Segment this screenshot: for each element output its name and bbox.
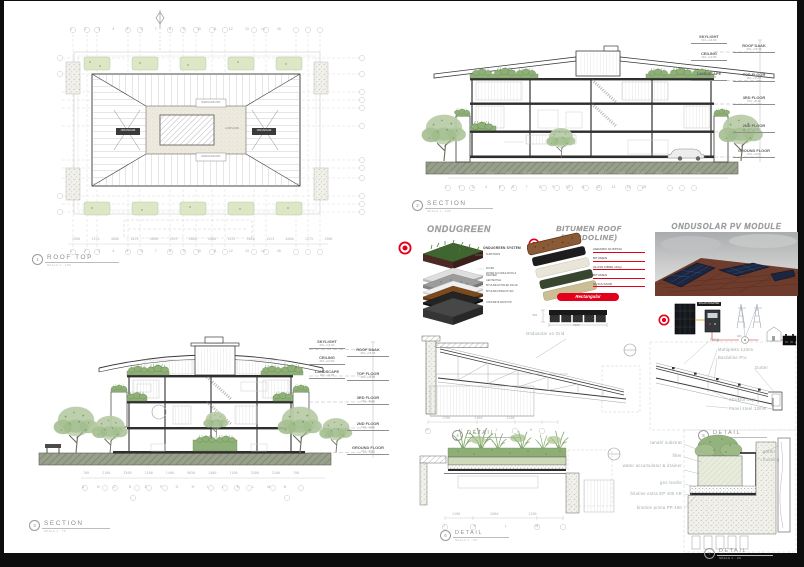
ondusolar-note: Ondusolar on Grid	[526, 331, 565, 336]
roof-chip-left: ONDUSOLAR	[116, 130, 140, 132]
callout-multipleks: Multipleks 12mm	[718, 347, 753, 352]
ondusolar-title: ONDUSOLAR PV MODULE	[653, 222, 800, 231]
profile-height-dim: 340	[532, 313, 537, 317]
drawing-title: DETAIL	[453, 530, 509, 538]
layer-label: BITULINE EXTRA EP 400 AR	[486, 285, 524, 288]
profile-width-dim: 1000	[573, 323, 580, 327]
grid-numbers-bottom: 1 2 3 4 5 6 7 8 9 10 11 12 13 14 15	[70, 249, 281, 253]
level-skylight: SKYLIGHTFFL +14.90	[309, 340, 345, 349]
skylight-hatch	[160, 115, 214, 145]
detail-corner-title-block: 7 DETAIL SKALA 1 : 20	[704, 548, 773, 560]
level-top-floor: TOP FLOORFFL +11.95	[347, 372, 389, 381]
pv-roof-photo	[655, 232, 798, 296]
bardoline-layer-label: BITUMEN	[593, 256, 645, 262]
drainage	[448, 465, 566, 469]
level-top-floor: TOP FLOORFFL +11.95	[733, 73, 775, 82]
gutter-channel	[778, 438, 790, 532]
roof-label-bottom: BARDOLINE PRO	[196, 156, 226, 158]
layer-label: GEOTEXTILE	[486, 280, 524, 283]
bench	[45, 444, 61, 453]
level-3rd-floor: 3RD FLOORFFL +8.40	[347, 396, 389, 405]
callout-filter: filter	[600, 453, 682, 458]
louver-band	[430, 386, 534, 416]
drawing-title: SECTION	[425, 200, 493, 209]
drawing-number: 7	[704, 548, 715, 559]
drawing-scale: SKALA 1 : 100	[425, 209, 493, 213]
bardoline-layer-label: SILICA SAND	[593, 282, 645, 288]
drawing-number: 1	[32, 254, 43, 265]
level-ground-floor: GROUND FLOORFFL +0.00	[347, 446, 389, 455]
grid-numbers: 1 2 3 4 5 6 7 8 9 10 11 12 13 14 15	[445, 185, 646, 189]
level-2nd-floor: 2ND FLOORFFL +4.90	[347, 422, 389, 431]
car	[668, 149, 704, 161]
rectangular-badge: Rectangular	[557, 293, 619, 301]
dimension-row: 1900 1375 4000 1525 4000 1525 2800 2800 …	[448, 171, 701, 175]
ondugreen-panel: ONDUGREEN ONDUGREEN SYSTEM	[393, 224, 525, 328]
level-landscape: LANDSCAPEFFL +11.95	[691, 72, 727, 81]
callout-struktur-baja: Struktur baja	[729, 397, 756, 402]
layer-label: SUBSTRATE	[486, 254, 524, 257]
section-bottom-panel: 700 2100 3300 1100 1400 9850 1400 1100 3…	[25, 332, 397, 546]
level-3rd-floor: 3RD FLOORFFL +8.40	[733, 96, 775, 105]
level-ground-floor: GROUND FLOORFFL +0.00	[733, 149, 775, 158]
drawing-scale: SKALA 1 : 50	[453, 538, 509, 542]
battens	[672, 367, 761, 391]
level-skylight: SKYLIGHTFFL +14.90	[691, 35, 727, 44]
power-towers	[737, 304, 762, 338]
drawing-title: ROOF TOP	[45, 254, 119, 263]
roof-chip-right: ONDUSOLAR	[252, 130, 276, 132]
drawing-number: 3	[29, 520, 40, 531]
liner	[740, 453, 756, 487]
hedge	[448, 448, 566, 457]
dimension-row: 700 2100 3300 1100 1400 9850 1400 1100 3…	[83, 471, 299, 475]
drawing-number: 6	[440, 530, 451, 541]
drawing-number: 2	[412, 200, 423, 211]
grid-numbers-top: 1 2 3 4 5 6 7 8 9 10 11 12 13 14 15	[70, 27, 281, 31]
level-roof-daak: ROOF DAAKFFL +15.35	[733, 44, 775, 53]
bardoline-layer-label: BITUMEN	[593, 273, 645, 279]
drawing-sheet-viewport: 1 2 3 4 5 6 7 8 9 10 11 12 13 14 15 1 2 …	[0, 0, 804, 567]
shingle-stack	[527, 231, 597, 302]
callout-tanah: tanah/ substrat	[600, 440, 682, 445]
callout-gutter: Gutter	[755, 365, 768, 370]
level-ceiling: CEILINGFFL +13.80	[309, 356, 345, 365]
bardoline-layer-label: CERAMIC DUSTING	[593, 247, 645, 253]
dimension-row: 1700 1400 1100	[442, 416, 515, 420]
ground	[39, 453, 331, 465]
detail-corner-panel: tanah/ substrat filter water accumulator…	[600, 424, 800, 559]
membrane	[690, 493, 756, 495]
courtyard-tree	[546, 128, 575, 158]
drainage-band	[690, 486, 756, 493]
callout-bituline-extra: bituline extra EP 400 AR	[600, 491, 682, 496]
courtyard-label: LANDSCAPE	[220, 128, 244, 130]
level-landscape: LANDSCAPEFFL +11.95	[309, 370, 345, 379]
level-2nd-floor: 2ND FLOORFFL +4.90	[733, 124, 775, 133]
level-ceiling: CEILINGFFL +13.80	[691, 52, 727, 61]
section-top-title-block: 2 SECTION SKALA 1 : 100	[412, 200, 493, 213]
tree-left-2	[92, 416, 128, 453]
layer-stack	[423, 240, 483, 325]
callout-circle	[624, 344, 636, 356]
dimension-row: 1900 1375 4000 1525 4000 1525 2800 2800 …	[72, 237, 332, 241]
roof-plan-panel: 1 2 3 4 5 6 7 8 9 10 11 12 13 14 15 1 2 …	[28, 8, 396, 272]
roof-label-top: BARDOLINE PRO	[196, 102, 226, 104]
planter-tree	[203, 412, 228, 438]
callout-geo-textile: geo textile	[600, 480, 682, 485]
shrub	[695, 435, 742, 458]
substrate	[448, 457, 566, 465]
callout-gutter: gutter	[763, 449, 775, 454]
north-arrow-icon	[156, 10, 164, 52]
membrane	[448, 469, 566, 471]
gutter-profile	[768, 392, 782, 410]
roof-plan-title-block: 1 ROOF TOP SKALA 1 : 100	[32, 254, 119, 267]
inverter-label: SOLAR INVERTER	[697, 302, 721, 306]
building	[99, 337, 323, 454]
callout-water-accumulator: water accumulator & drainer	[620, 464, 682, 469]
layer-label: WATER ACCUMULATION & DRAINER	[486, 273, 524, 278]
callout-flushing: flushing	[763, 457, 780, 462]
detail-planter-title-block: 6 DETAIL SKALA 1 : 50	[440, 530, 509, 542]
roof-plan-drawing	[28, 8, 396, 272]
tree-right-1	[278, 407, 322, 453]
drawing-title: DETAIL	[717, 548, 773, 556]
drawing-scale: SKALA 1 : 75	[42, 529, 110, 533]
dimension-row: 1100 2000 1200	[452, 512, 537, 516]
drawing-scale: SKALA 1 : 100	[45, 263, 119, 267]
bardoline-panel: BITUMEN ROOF (BARDOLINE) CERAMIC DUSTING…	[527, 224, 651, 328]
drawing-scale: SKALA 1 : 20	[717, 556, 773, 560]
layer-label: FILTER	[486, 268, 524, 271]
drawing-title: SECTION	[42, 520, 110, 529]
layer-label: BITULINE PRIMA PP 400	[486, 291, 524, 294]
section-bottom-title-block: 3 SECTION SKALA 1 : 75	[29, 520, 110, 533]
onduline-logo-icon	[399, 242, 412, 255]
ondusolar-panel: ONDUSOLAR PV MODULE	[653, 222, 800, 352]
bardoline-layer-label: GLASS FIBRE 110gr	[593, 265, 645, 271]
grid-letters: J K L M	[443, 524, 538, 528]
callout-reng: reng	[710, 337, 719, 342]
layer-label: CONCRETE ROOFTOP	[486, 302, 524, 305]
callout-bardoline-pro: Bardoline Pro	[718, 355, 747, 360]
grid-letters: A B C D E F G H I J K L M N	[82, 485, 286, 489]
canopy-below	[124, 220, 252, 238]
section-top-panel: 1900 1375 4000 1525 4000 1525 2800 2800 …	[408, 22, 800, 222]
ondugreen-system-title: ONDUGREEN SYSTEM	[483, 246, 521, 250]
callout-bituline-prima: bituline prima PP 400	[600, 505, 682, 510]
level-roof-daak: ROOF DAAKFFL +15.35	[347, 348, 389, 357]
callout-panel-steel: Panel steel 12mm	[729, 406, 767, 411]
onduline-logo-icon	[659, 315, 670, 326]
